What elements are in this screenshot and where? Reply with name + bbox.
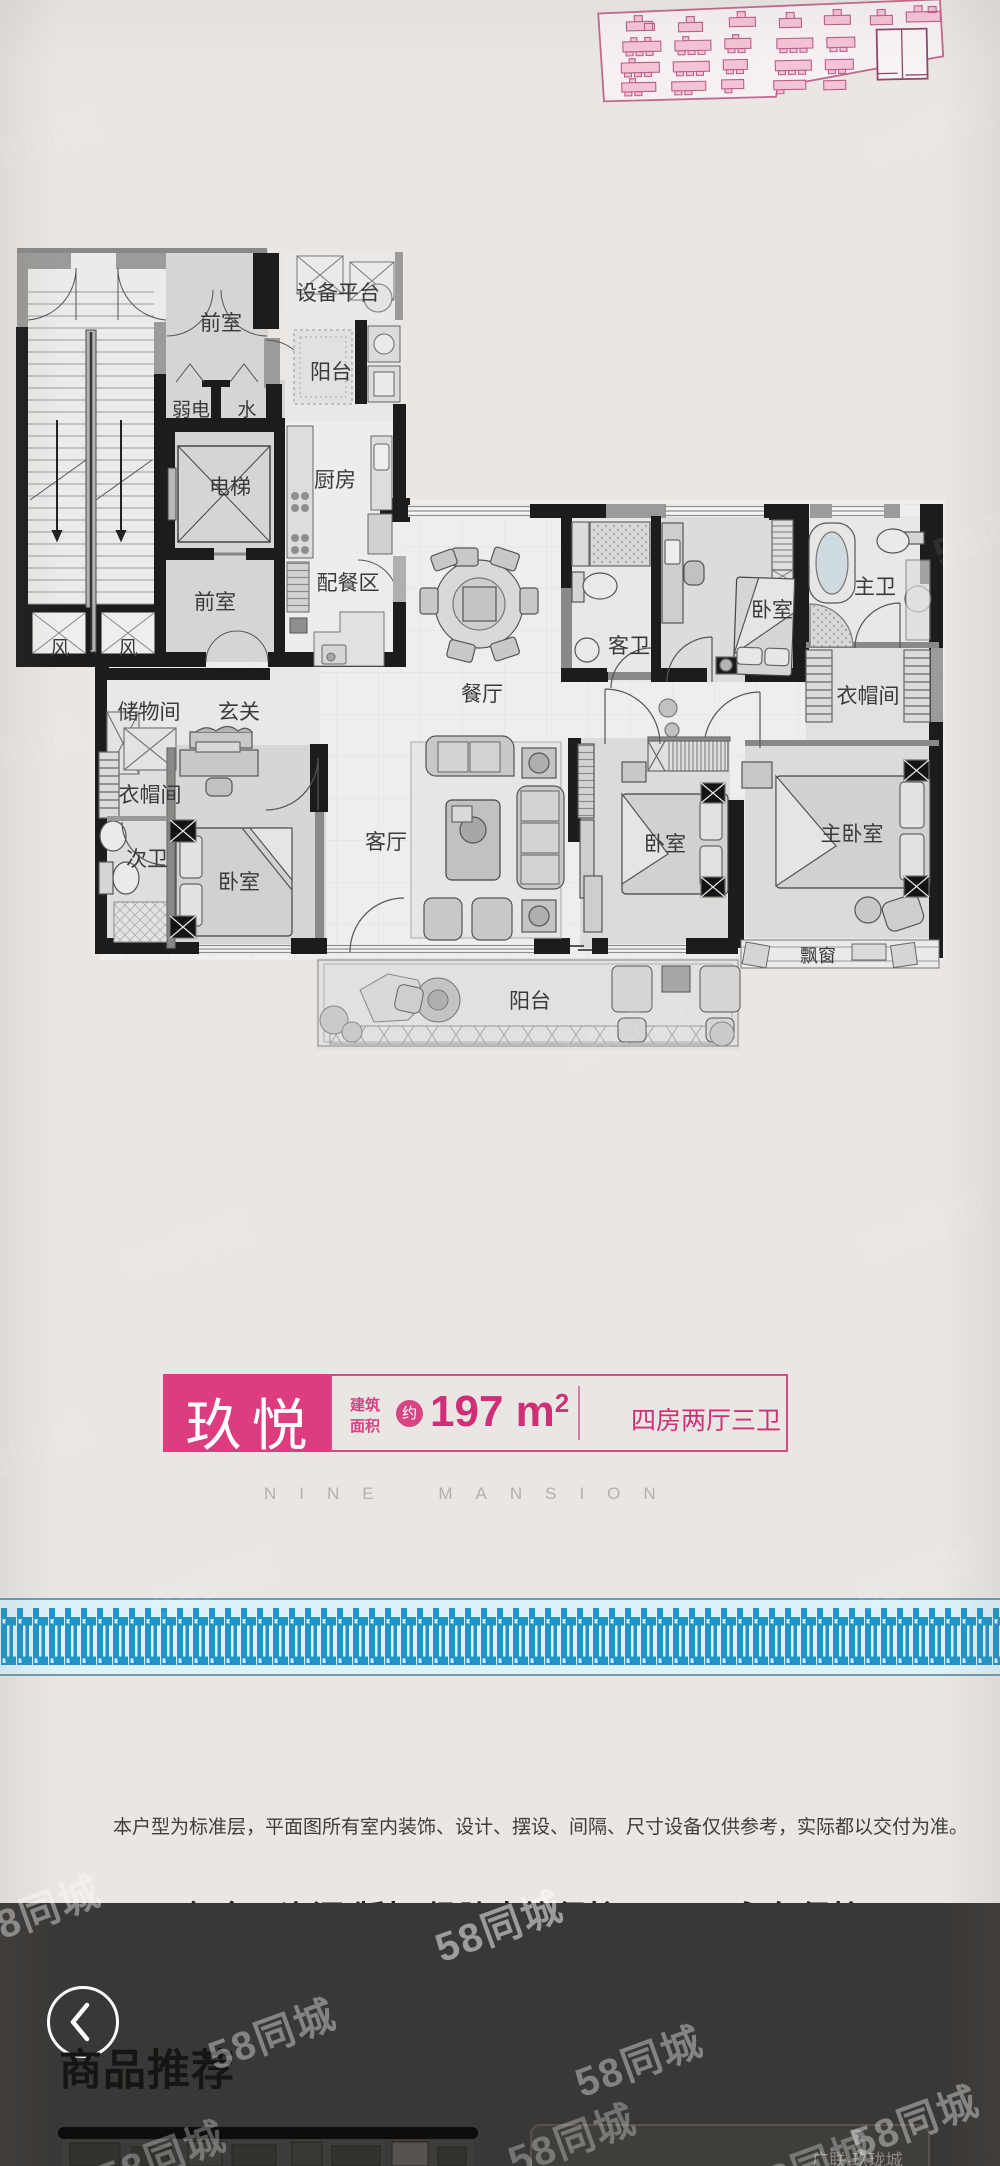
svg-text:客卫: 客卫 (608, 635, 650, 658)
svg-text:卧室: 卧室 (751, 599, 793, 622)
svg-text:主卫: 主卫 (854, 576, 896, 599)
svg-text:风: 风 (50, 638, 69, 659)
svg-text:卧室: 卧室 (218, 871, 260, 894)
svg-text:衣帽间: 衣帽间 (837, 685, 900, 708)
svg-text:玄关: 玄关 (218, 701, 260, 724)
svg-text:水: 水 (237, 399, 256, 421)
svg-text:设备平台: 设备平台 (296, 282, 380, 305)
svg-text:弱电: 弱电 (172, 399, 210, 421)
svg-text:餐厅: 餐厅 (461, 683, 503, 706)
svg-text:阳台: 阳台 (509, 990, 551, 1013)
svg-text:电梯: 电梯 (209, 476, 251, 499)
svg-text:厨房: 厨房 (314, 469, 356, 492)
svg-text:前室: 前室 (200, 312, 242, 335)
svg-text:储物间: 储物间 (118, 701, 181, 724)
svg-text:卧室: 卧室 (644, 833, 686, 856)
svg-text:前室: 前室 (194, 591, 236, 614)
svg-text:阳台: 阳台 (310, 361, 352, 384)
svg-text:主卧室: 主卧室 (821, 823, 884, 846)
svg-text:飘窗: 飘窗 (800, 946, 836, 966)
svg-text:次卫: 次卫 (126, 848, 168, 871)
svg-text:衣帽间: 衣帽间 (119, 784, 182, 807)
svg-text:配餐区: 配餐区 (317, 572, 380, 595)
svg-text:客厅: 客厅 (365, 831, 407, 854)
svg-text:风: 风 (118, 638, 137, 659)
